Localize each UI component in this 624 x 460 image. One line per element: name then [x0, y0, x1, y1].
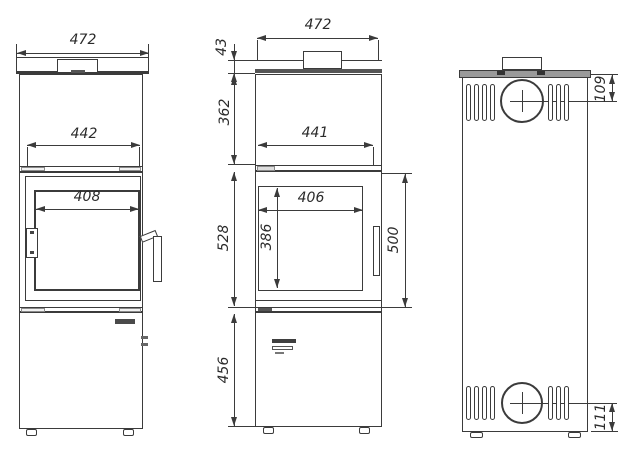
arrowhead	[231, 51, 237, 60]
dim-line	[36, 209, 139, 210]
vent-slot	[490, 386, 495, 420]
front-base-vent-dash-2	[141, 343, 148, 346]
arrowhead	[140, 50, 149, 56]
section-base-label-mark	[275, 352, 284, 354]
dim-back-flue-bottom-offset-label: 111	[594, 404, 608, 431]
vent-slot	[474, 84, 479, 121]
section-door-latch	[373, 226, 380, 276]
arrowhead	[231, 314, 237, 323]
front-divider2-endcap-right	[119, 308, 141, 312]
extension-line	[228, 307, 255, 308]
extension-line	[382, 307, 412, 308]
dim-back-flue-top-offset-label: 109	[594, 76, 608, 103]
front-hinge-bolt-top	[30, 231, 34, 234]
vent-slot	[490, 84, 495, 121]
vent-slot	[466, 84, 471, 121]
back-body	[462, 77, 588, 432]
dim-line	[27, 145, 140, 146]
vent-slot	[548, 84, 553, 121]
dim-section-glass-height-label: 386	[260, 224, 274, 251]
arrowhead	[609, 75, 615, 84]
extension-line	[378, 40, 379, 60]
arrowhead	[231, 76, 237, 85]
dim-line	[17, 53, 149, 54]
vent-slot	[482, 84, 487, 121]
arrowhead	[257, 35, 266, 41]
vent-slot	[548, 386, 553, 420]
dim-line	[234, 314, 235, 426]
arrowhead	[609, 403, 615, 412]
front-base-vent-dash-1	[141, 336, 148, 339]
arrowhead	[402, 298, 408, 307]
front-foot-right	[123, 429, 134, 436]
section-divider2-bottom	[255, 311, 382, 313]
arrowhead	[231, 417, 237, 426]
back-plate-bolt-left	[497, 71, 505, 75]
front-divider1-endcap-left	[21, 167, 45, 171]
arrowhead	[231, 297, 237, 306]
dim-section-firebox-height-label: 528	[217, 225, 231, 252]
dim-section-base-height-label: 456	[217, 357, 231, 384]
dim-line	[257, 38, 378, 39]
section-flue-collar	[303, 51, 342, 69]
extension-line	[139, 147, 140, 166]
arrowhead	[369, 35, 378, 41]
arrowhead	[27, 142, 36, 148]
technical-drawing-canvas: 472 442 408	[0, 0, 624, 460]
section-divider1-tag	[257, 166, 275, 171]
dim-line	[234, 76, 235, 164]
front-base-logo	[115, 319, 135, 324]
front-divider1-bottom	[19, 171, 143, 173]
arrowhead	[609, 92, 615, 101]
arrowhead	[130, 206, 139, 212]
vent-slot	[466, 386, 471, 420]
section-base-label-bar1	[272, 339, 296, 343]
arrowhead	[258, 207, 267, 213]
dim-line	[258, 145, 373, 146]
back-foot-left	[470, 432, 483, 438]
extension-line	[228, 164, 255, 165]
front-door-glass	[34, 190, 140, 291]
vent-slot	[556, 386, 561, 420]
vent-slot	[556, 84, 561, 121]
arrowhead	[364, 142, 373, 148]
extension-line	[27, 147, 28, 166]
section-foot-left	[263, 427, 274, 434]
dim-line	[234, 172, 235, 306]
dim-front-inner-width-label: 442	[71, 127, 98, 141]
back-plate-bolt-right	[537, 71, 545, 75]
dim-line	[258, 210, 363, 211]
arrowhead	[354, 207, 363, 213]
extension-line	[257, 40, 258, 60]
arrowhead	[131, 142, 140, 148]
section-foot-right	[359, 427, 370, 434]
dim-section-top-height-label: 43	[215, 38, 229, 56]
dim-section-firebox-width-label: 406	[298, 191, 325, 205]
section-base-label-bar2	[272, 346, 293, 350]
dim-line	[277, 188, 278, 288]
front-foot-left	[26, 429, 37, 436]
arrowhead	[231, 155, 237, 164]
front-collar-mark	[71, 70, 85, 73]
dim-front-glass-width-label: 408	[74, 190, 101, 204]
dim-section-door-span-label: 500	[387, 227, 401, 254]
extension-line	[228, 426, 257, 427]
back-foot-right	[568, 432, 581, 438]
dim-line	[405, 174, 406, 307]
vent-slot	[482, 386, 487, 420]
section-firebox-floor	[255, 300, 382, 301]
front-divider2-endcap-left	[21, 308, 45, 312]
arrowhead	[258, 142, 267, 148]
extension-line	[591, 431, 618, 432]
front-divider1-endcap-right	[119, 167, 141, 171]
arrowhead	[609, 422, 615, 431]
extension-line	[373, 147, 374, 165]
front-hinge-bolt-bottom	[30, 251, 34, 254]
vent-slot	[474, 386, 479, 420]
section-divider2-top	[255, 307, 382, 308]
arrowhead	[36, 206, 45, 212]
vent-slot	[564, 84, 569, 121]
front-door-handle-bar	[153, 236, 162, 282]
section-divider2-mark	[258, 308, 272, 311]
dim-section-width-label: 472	[305, 18, 332, 32]
arrowhead	[274, 279, 280, 288]
arrowhead	[274, 188, 280, 197]
arrowhead	[231, 172, 237, 181]
arrowhead	[402, 174, 408, 183]
dim-section-upper-height-label: 362	[218, 99, 232, 126]
back-flue-collar	[502, 57, 542, 70]
arrowhead	[17, 50, 26, 56]
section-cap-band	[255, 69, 382, 73]
dim-front-width-label: 472	[70, 33, 97, 47]
dim-section-inner-width-label: 441	[302, 126, 329, 140]
vent-slot	[564, 386, 569, 420]
